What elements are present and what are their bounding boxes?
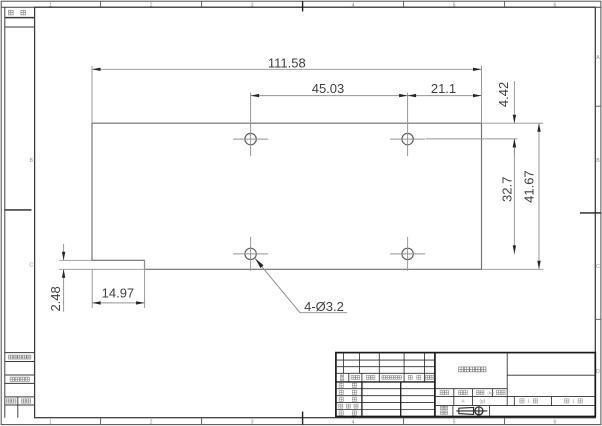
svg-text:(kg): (kg): [488, 391, 494, 395]
svg-text:B: B: [29, 158, 33, 164]
svg-text:A: A: [596, 55, 600, 61]
svg-text:(g): (g): [479, 399, 485, 404]
svg-text:3: 3: [251, 420, 254, 426]
svg-text:C: C: [29, 263, 33, 269]
svg-text:32.7: 32.7: [499, 177, 514, 202]
svg-text:1: 1: [49, 2, 52, 8]
svg-text:3: 3: [251, 2, 254, 8]
svg-text:2: 2: [150, 420, 153, 426]
svg-text:4: 4: [352, 2, 355, 8]
svg-text:1: 1: [49, 420, 52, 426]
svg-text:6: 6: [554, 420, 557, 426]
svg-text:A: A: [461, 399, 465, 404]
svg-text:B: B: [596, 158, 600, 164]
svg-text:21.1: 21.1: [431, 81, 456, 96]
svg-text:14.97: 14.97: [102, 286, 135, 301]
svg-text:D: D: [596, 369, 600, 375]
svg-text:111.58: 111.58: [268, 55, 306, 70]
svg-text:6: 6: [554, 2, 557, 8]
svg-text:1: 1: [527, 399, 530, 404]
svg-text:4: 4: [352, 420, 355, 426]
svg-text:41.67: 41.67: [522, 170, 537, 203]
svg-text:45.03: 45.03: [312, 81, 345, 96]
svg-text:C: C: [596, 264, 600, 270]
svg-text:5: 5: [453, 420, 456, 426]
svg-text:5: 5: [453, 2, 456, 8]
svg-text:2: 2: [150, 2, 153, 8]
svg-text:1: 1: [572, 399, 575, 404]
svg-text:2.48: 2.48: [48, 286, 63, 311]
svg-text:4-Ø3.2: 4-Ø3.2: [304, 299, 344, 314]
svg-text:4.42: 4.42: [496, 82, 511, 107]
